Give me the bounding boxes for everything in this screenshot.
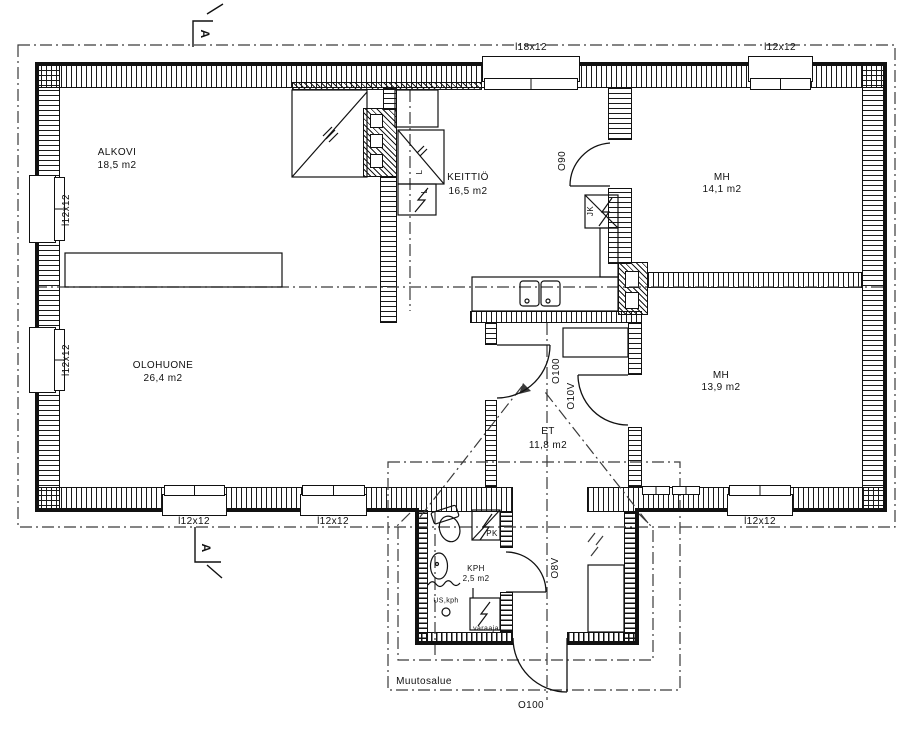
door-label: O90 [558,151,568,171]
wall-extension-bottom-right [567,632,637,645]
sink-basin [541,281,560,306]
wall-kitchen-bedroom-lower [608,188,632,264]
floor-plan: ALKOVI 18,5 m2 KEITTIÖ 16,5 m2 MH 14,1 m… [0,0,922,739]
slope-arrow [519,383,531,394]
sink-basin [520,281,539,306]
wall-between-bedrooms [647,272,862,288]
wall-chimney-stub [383,88,397,110]
room-label-kph: KPH [467,565,485,573]
wall-bottom-left [35,487,513,512]
fixture-label-heater: varaaja [473,626,499,633]
window-left-upper [29,175,56,243]
wall-fireplace [380,177,397,323]
door-kitchen-bedroom [570,143,610,186]
flue-opening [625,292,639,309]
shower-curtain [428,581,460,587]
porch-bench [588,565,624,632]
window-label: l12x12 [62,344,72,376]
wall-kitchen-bedroom-upper [608,88,632,140]
building-outline [37,64,885,643]
door-hall-bedroom [578,375,628,425]
stove-unit-lower [398,184,436,215]
window-label: l18x12 [515,43,547,53]
wall-kitchen-hall [470,311,642,323]
wall-hall-west-upper [485,323,497,345]
window-panes [484,78,578,90]
section-marker-top: A [199,29,211,38]
fireplace-ticks [323,127,338,142]
door-bathroom [506,552,546,592]
floor-drain [442,608,450,616]
door-label: O100 [518,701,544,711]
wall-hall-west-lower [485,400,497,487]
electric-symbol [478,602,490,626]
corner-tie-line [638,513,651,526]
porch-hatch-dashes [588,533,603,556]
room-area-olohuone: 26,4 m2 [144,374,183,384]
flue-opening [370,114,383,128]
room-label-alkovi: ALKOVI [98,148,137,158]
room-area-mh-top: 14,1 m2 [703,185,742,195]
room-label-keittio: KEITTIÖ [447,173,489,183]
flue-opening [625,271,639,288]
fixture-label-fridge: JK [587,206,595,216]
wall-right [862,62,887,512]
wall-hall-east-upper [628,323,642,375]
corner-tie-line [397,513,410,526]
room-label-mh-mid: MH [713,371,729,381]
door-label: O100 [552,358,562,384]
fixture-label-stove: L [421,189,429,194]
porch-window-pane [672,486,700,495]
room-label-et: ET [541,427,555,437]
window-label: l12x12 [744,517,776,527]
fixture-label-washer: PK [486,530,497,538]
wall-bath-east-lower [500,592,513,632]
window-panes [750,78,811,90]
porch-window-pane [642,486,670,495]
fireplace [292,90,367,177]
fixture-label-stove: L [416,170,424,175]
hall-closet [563,328,628,357]
fireplace-diagonal [292,92,367,177]
stove-unit [398,130,444,184]
door-entrance [513,638,567,692]
washbasin [431,553,448,579]
window-bottom-mid [300,494,367,516]
room-label-mh-top: MH [714,173,730,183]
door-label: O8V [551,557,561,578]
room-area-keittio: 16,5 m2 [449,187,488,197]
room-label-olohuone: OLOHUONE [133,361,193,371]
kitchen-cabinet [395,90,438,127]
change-area-label: Muutosalue [396,677,452,687]
room-area-et: 11,8 m2 [529,441,567,451]
door-label: O10V [567,382,577,409]
wall-extension-bottom-left [415,632,513,645]
room-area-alkovi: 18,5 m2 [98,161,137,171]
wall-bath-east-upper [500,512,513,548]
window-bottom-right [727,494,793,516]
sink-drain [525,299,529,303]
window-label: l12x12 [62,194,72,226]
flue-opening [370,134,383,148]
window-label: l12x12 [317,517,349,527]
window-label: l12x12 [178,517,210,527]
section-marker-bottom: A [200,543,212,552]
wall-hall-east-lower [628,427,642,487]
window-panes [729,485,791,496]
alcove-bench [65,253,282,287]
wall-porch-east [624,512,637,645]
sink-drain [546,299,550,303]
wall-bath-west [415,510,428,645]
window-label: l12x12 [764,43,796,53]
firewall-band [292,82,482,90]
fixture-label-drain: US,kph [433,598,458,605]
flue-opening [370,154,383,168]
door-hall-living [497,345,550,398]
window-panes [302,485,365,496]
washbasin-drain [436,563,439,566]
room-area-kph: 2,5 m2 [463,575,490,583]
section-line-top [193,4,223,47]
kitchen-counter [472,277,618,311]
wall-left [35,62,60,512]
window-left-lower [29,327,56,393]
window-panes [164,485,225,496]
room-area-mh-mid: 13,9 m2 [702,383,741,393]
window-bottom-left [162,494,227,516]
